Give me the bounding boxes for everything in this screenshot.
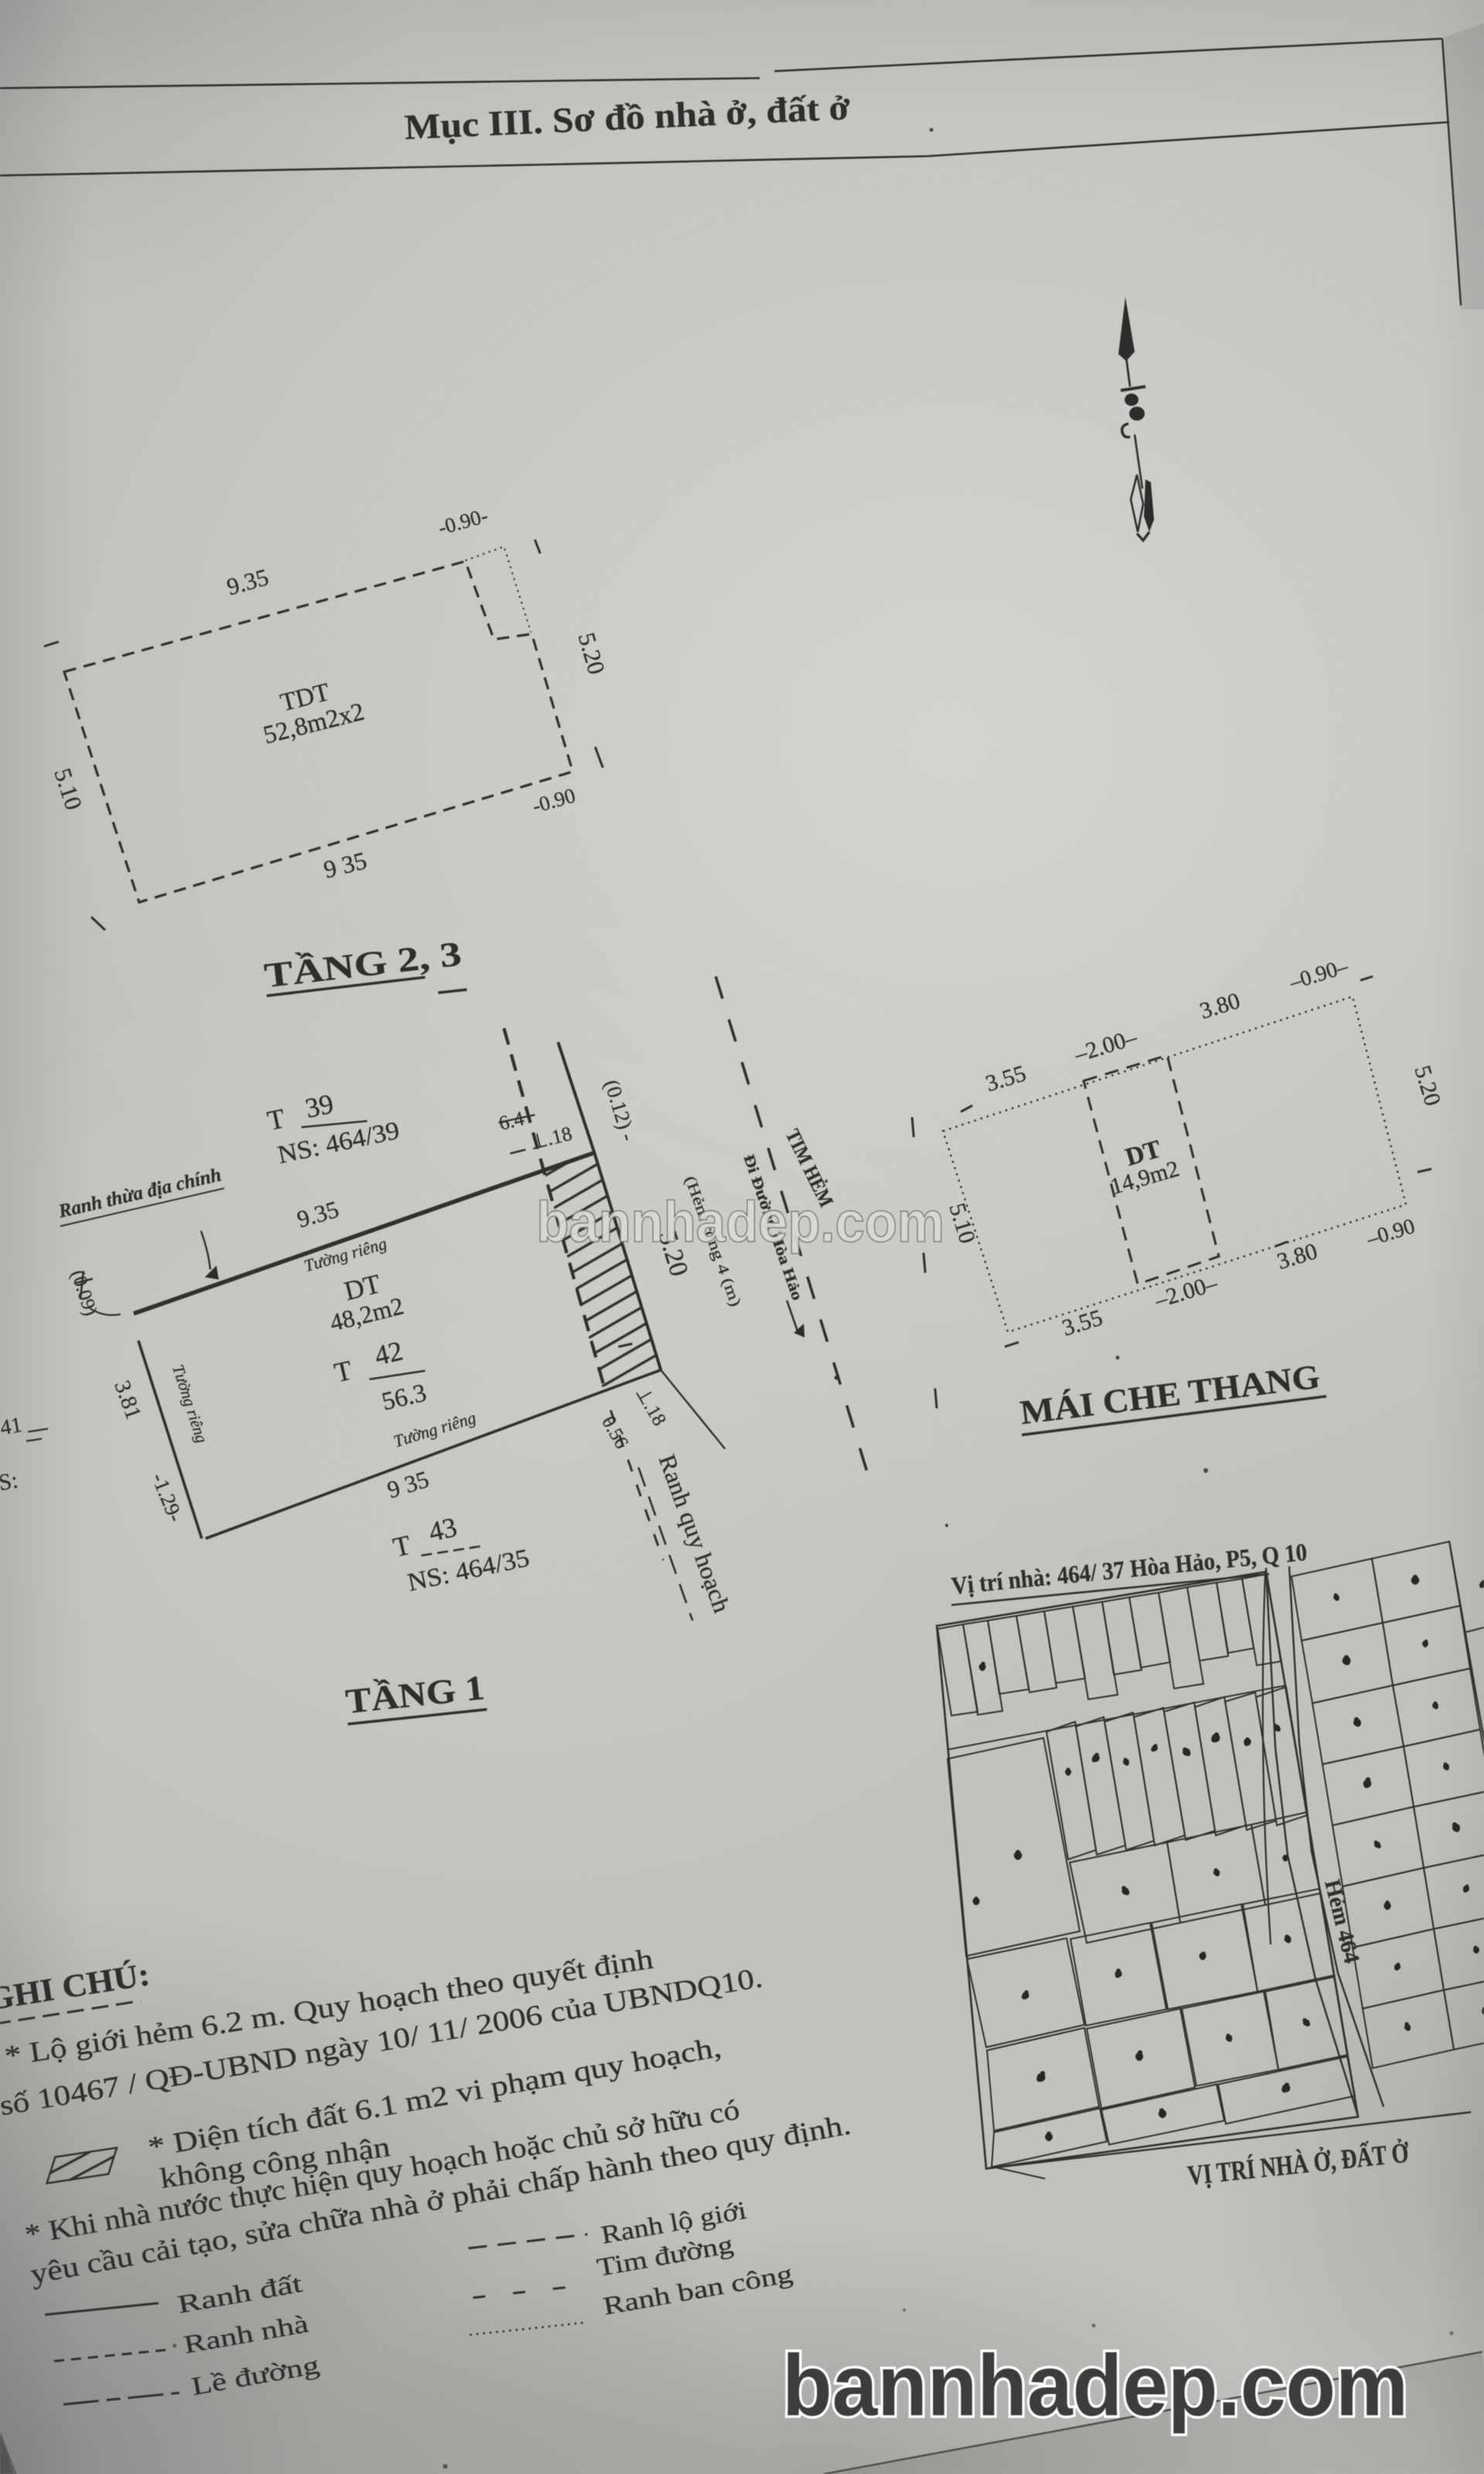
svg-text:bannhadep.com: bannhadep.com <box>782 2337 1408 2434</box>
svg-text:bannhadep.com: bannhadep.com <box>536 1190 945 1254</box>
svg-text:41: 41 <box>0 1413 24 1440</box>
